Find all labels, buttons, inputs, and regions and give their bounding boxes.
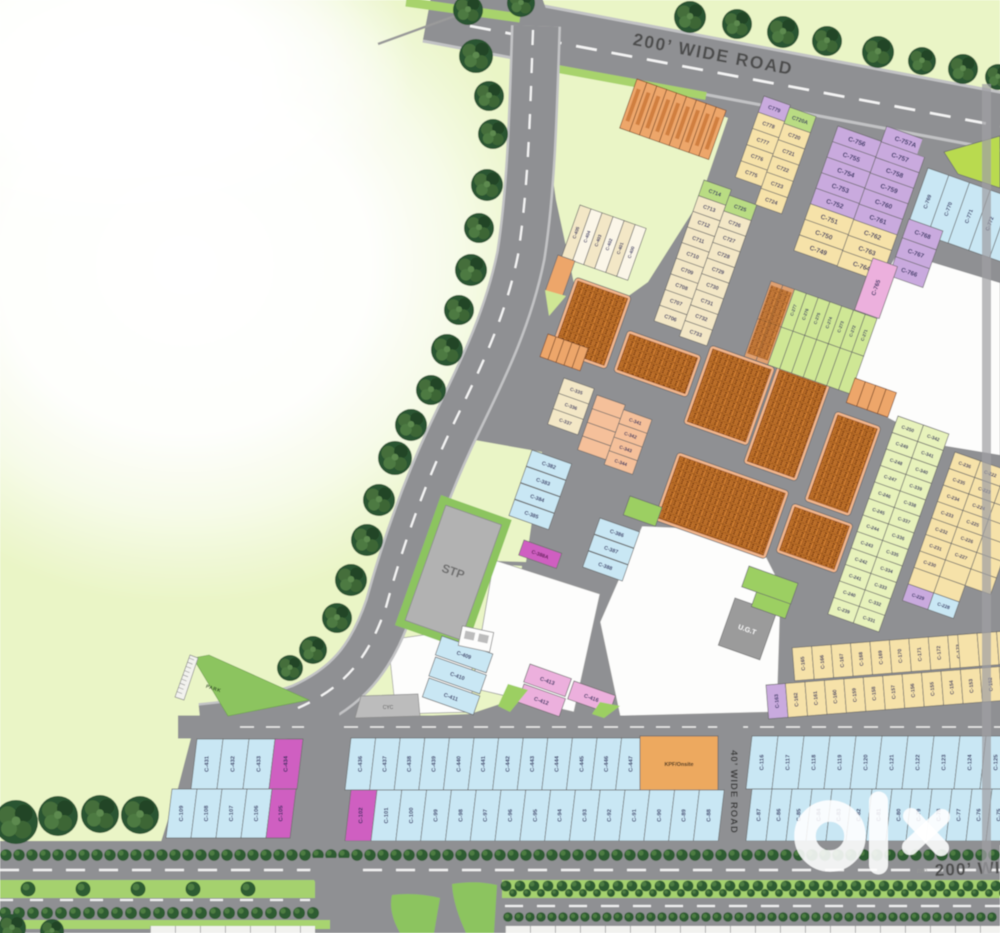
svg-text:C-158: C-158	[871, 686, 878, 701]
svg-text:C-432: C-432	[231, 755, 237, 772]
svg-text:C-107: C-107	[229, 805, 235, 822]
svg-text:C-439: C-439	[432, 755, 438, 772]
svg-text:KPF/Onsite: KPF/Onsite	[664, 762, 693, 768]
svg-text:C-436: C-436	[358, 755, 364, 772]
svg-text:C-121: C-121	[890, 754, 896, 771]
svg-text:C-165: C-165	[800, 656, 807, 671]
svg-text:C-445: C-445	[579, 755, 585, 772]
svg-text:C-87: C-87	[757, 808, 763, 821]
svg-text:C-91: C-91	[632, 808, 638, 821]
svg-text:C-102: C-102	[359, 807, 365, 824]
svg-text:C-169: C-169	[878, 650, 885, 665]
svg-text:C-108: C-108	[204, 805, 210, 822]
svg-text:C-93: C-93	[582, 808, 588, 821]
svg-text:C-89: C-89	[682, 808, 688, 821]
svg-text:C-106: C-106	[254, 805, 260, 822]
svg-text:C-76: C-76	[977, 808, 983, 821]
svg-text:C-124: C-124	[968, 754, 974, 771]
svg-text:C-155: C-155	[929, 682, 936, 697]
svg-text:C-109: C-109	[179, 805, 185, 822]
svg-text:C-160: C-160	[832, 689, 839, 704]
svg-text:C-80: C-80	[897, 808, 903, 821]
svg-text:C-438: C-438	[407, 755, 413, 772]
svg-text:C-118: C-118	[812, 754, 818, 770]
svg-text:C-99: C-99	[434, 808, 440, 821]
svg-text:C-443: C-443	[530, 755, 536, 772]
svg-text:C-159: C-159	[852, 688, 859, 703]
svg-text:C-434: C-434	[284, 755, 290, 772]
svg-text:C-96: C-96	[508, 808, 514, 821]
svg-text:C-105: C-105	[279, 805, 285, 822]
svg-text:C-97: C-97	[483, 808, 489, 821]
svg-text:C-171: C-171	[917, 647, 924, 662]
svg-text:C-116: C-116	[760, 754, 766, 770]
svg-text:C-447: C-447	[628, 755, 634, 772]
svg-text:C-442: C-442	[505, 755, 511, 772]
svg-text:C-77: C-77	[957, 808, 963, 821]
svg-text:C-120: C-120	[864, 754, 870, 771]
svg-text:C-441: C-441	[481, 755, 487, 772]
svg-text:C-167: C-167	[839, 653, 846, 668]
svg-text:C-437: C-437	[382, 755, 388, 772]
svg-text:rrm: rrm	[917, 868, 928, 875]
svg-text:C-161: C-161	[813, 691, 820, 706]
svg-text:C-162: C-162	[793, 692, 800, 707]
svg-text:C-153: C-153	[968, 678, 975, 693]
svg-text:40’ WIDE ROAD: 40’ WIDE ROAD	[728, 750, 739, 834]
svg-text:C-166: C-166	[819, 655, 826, 670]
svg-text:C-125: C-125	[994, 754, 1000, 771]
svg-text:C-444: C-444	[555, 755, 561, 772]
svg-text:C-157: C-157	[891, 685, 898, 700]
svg-text:C-154: C-154	[949, 680, 956, 695]
svg-text:C-446: C-446	[604, 755, 610, 772]
svg-text:C-86: C-86	[777, 808, 783, 821]
svg-text:C-95: C-95	[533, 808, 539, 821]
svg-text:C-123: C-123	[942, 754, 948, 771]
svg-text:C-75: C-75	[997, 808, 1000, 821]
svg-text:C-163: C-163	[774, 694, 781, 709]
svg-text:C-92: C-92	[607, 808, 613, 821]
svg-text:C-94: C-94	[558, 808, 564, 821]
svg-text:C-156: C-156	[910, 683, 917, 698]
svg-text:C-117: C-117	[786, 754, 792, 770]
svg-text:C-88: C-88	[706, 808, 712, 821]
svg-text:C-119: C-119	[838, 754, 844, 770]
svg-text:C-98: C-98	[458, 808, 464, 821]
svg-text:C-433: C-433	[257, 755, 263, 772]
svg-text:C-170: C-170	[897, 648, 904, 663]
svg-text:C-168: C-168	[858, 652, 865, 667]
svg-text:C-90: C-90	[657, 808, 663, 821]
svg-text:C-122: C-122	[916, 754, 922, 771]
svg-text:CYC: CYC	[383, 705, 394, 711]
svg-text:C-440: C-440	[456, 755, 462, 772]
svg-text:C-101: C-101	[384, 807, 390, 824]
svg-text:C-172: C-172	[936, 645, 943, 660]
svg-text:C-431: C-431	[205, 755, 211, 772]
svg-text:C-100: C-100	[409, 807, 415, 824]
